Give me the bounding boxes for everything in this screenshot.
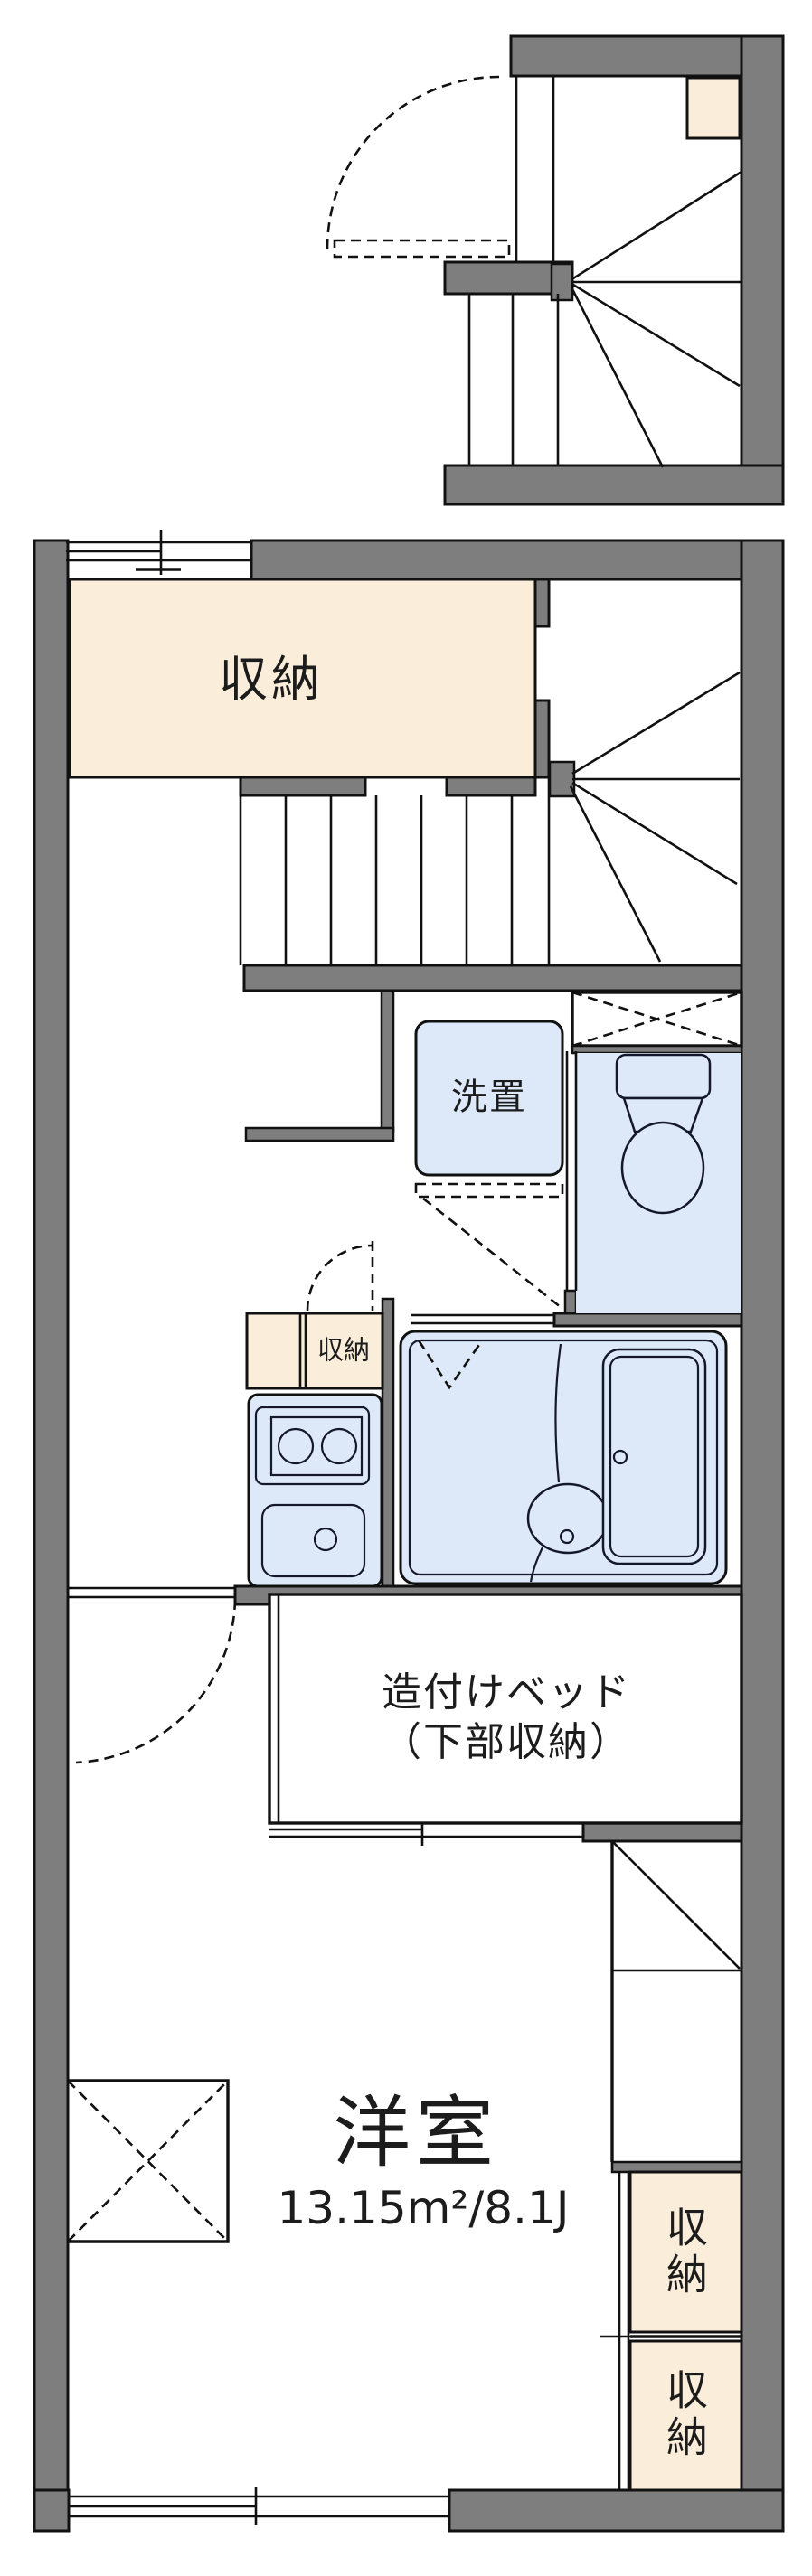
outer-wall-bottom: [34, 2490, 69, 2531]
bathtub: [603, 1349, 705, 1564]
washer-space-label: 洗置: [451, 1079, 527, 1115]
winder-stair-tread: [571, 786, 660, 962]
kitchen: [247, 1241, 382, 1586]
entry-stair-section: [327, 36, 783, 504]
washer-area: [416, 1021, 562, 1308]
storage-bottom-wall: [447, 777, 535, 795]
storage-bottom-wall: [241, 777, 365, 795]
room-area-label: 13.15m²/8.1J: [278, 2186, 570, 2231]
storage-side-wall: [535, 579, 549, 626]
room-door-swing-arc: [76, 1600, 235, 1763]
stair-newel-post: [550, 762, 574, 796]
closet-top-label: 収納: [664, 2205, 705, 2299]
closet-top-wall: [583, 1823, 741, 1841]
closet-bottom-label: 収納: [664, 2368, 705, 2462]
outer-wall-right: [741, 541, 783, 2531]
floor-plan: 収納 洗置 収納 造付けベッド （下部収納） 洋室 13.15m²/8.1J 収…: [0, 0, 812, 2576]
large-storage-label: 収納: [219, 655, 324, 704]
outer-wall-left: [34, 541, 68, 2531]
entrance-door-leaf: [335, 240, 509, 257]
bed-label-line1: 造付けベッド: [382, 1673, 631, 1713]
toilet-tank: [617, 1055, 710, 1098]
kitchen-storage-label: 収納: [317, 1338, 370, 1364]
wall: [741, 36, 783, 504]
washroom-door-swing-arc: [423, 1199, 562, 1308]
kitchen-door-swing-arc: [307, 1246, 373, 1311]
winder-stair-tread: [573, 285, 740, 386]
toilet-bath-wall: [554, 1313, 741, 1326]
kitchen-side-wall: [382, 1299, 393, 1586]
outer-wall-top: [251, 541, 783, 579]
washroom-door-leaf: [416, 1184, 562, 1197]
outer-wall-bottom: [449, 2490, 783, 2531]
hallway-stub-wall: [246, 1128, 393, 1141]
closet-shelf-wall: [612, 2162, 741, 2172]
wall: [445, 465, 783, 504]
shelf-wall: [572, 1046, 741, 1053]
closet-hanging-diagonal: [612, 1841, 740, 1969]
room-name-label: 洋室: [333, 2094, 499, 2172]
washer-partition-wall: [382, 991, 393, 1132]
winder-stair-tread: [572, 783, 737, 884]
bed-label-line2: （下部収納）: [382, 1723, 631, 1763]
winder-stair-tread: [573, 172, 741, 278]
storage-side-wall: [535, 700, 549, 777]
toilet-room: [567, 992, 741, 1313]
entry-storage-box: [687, 78, 740, 138]
counter-desk: [68, 2081, 228, 2242]
winder-stair-tread: [572, 672, 740, 774]
toilet-door-jamb: [565, 1291, 576, 1313]
toilet-bowl: [622, 1123, 703, 1213]
bathroom: [401, 1331, 726, 1584]
stair-bottom-wall: [244, 965, 741, 991]
winder-stair-tread: [571, 287, 663, 467]
entrance-door-swing-arc: [327, 77, 499, 249]
stair-newel-post: [552, 264, 572, 300]
